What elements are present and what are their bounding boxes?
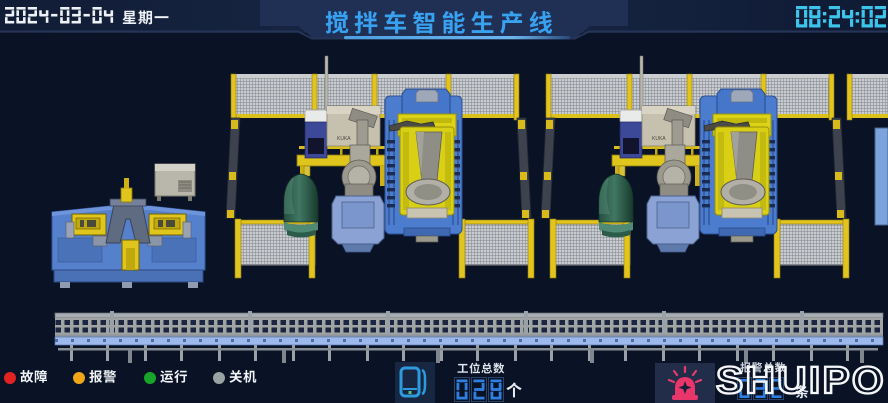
svg-text:KUKA: KUKA — [337, 136, 351, 142]
